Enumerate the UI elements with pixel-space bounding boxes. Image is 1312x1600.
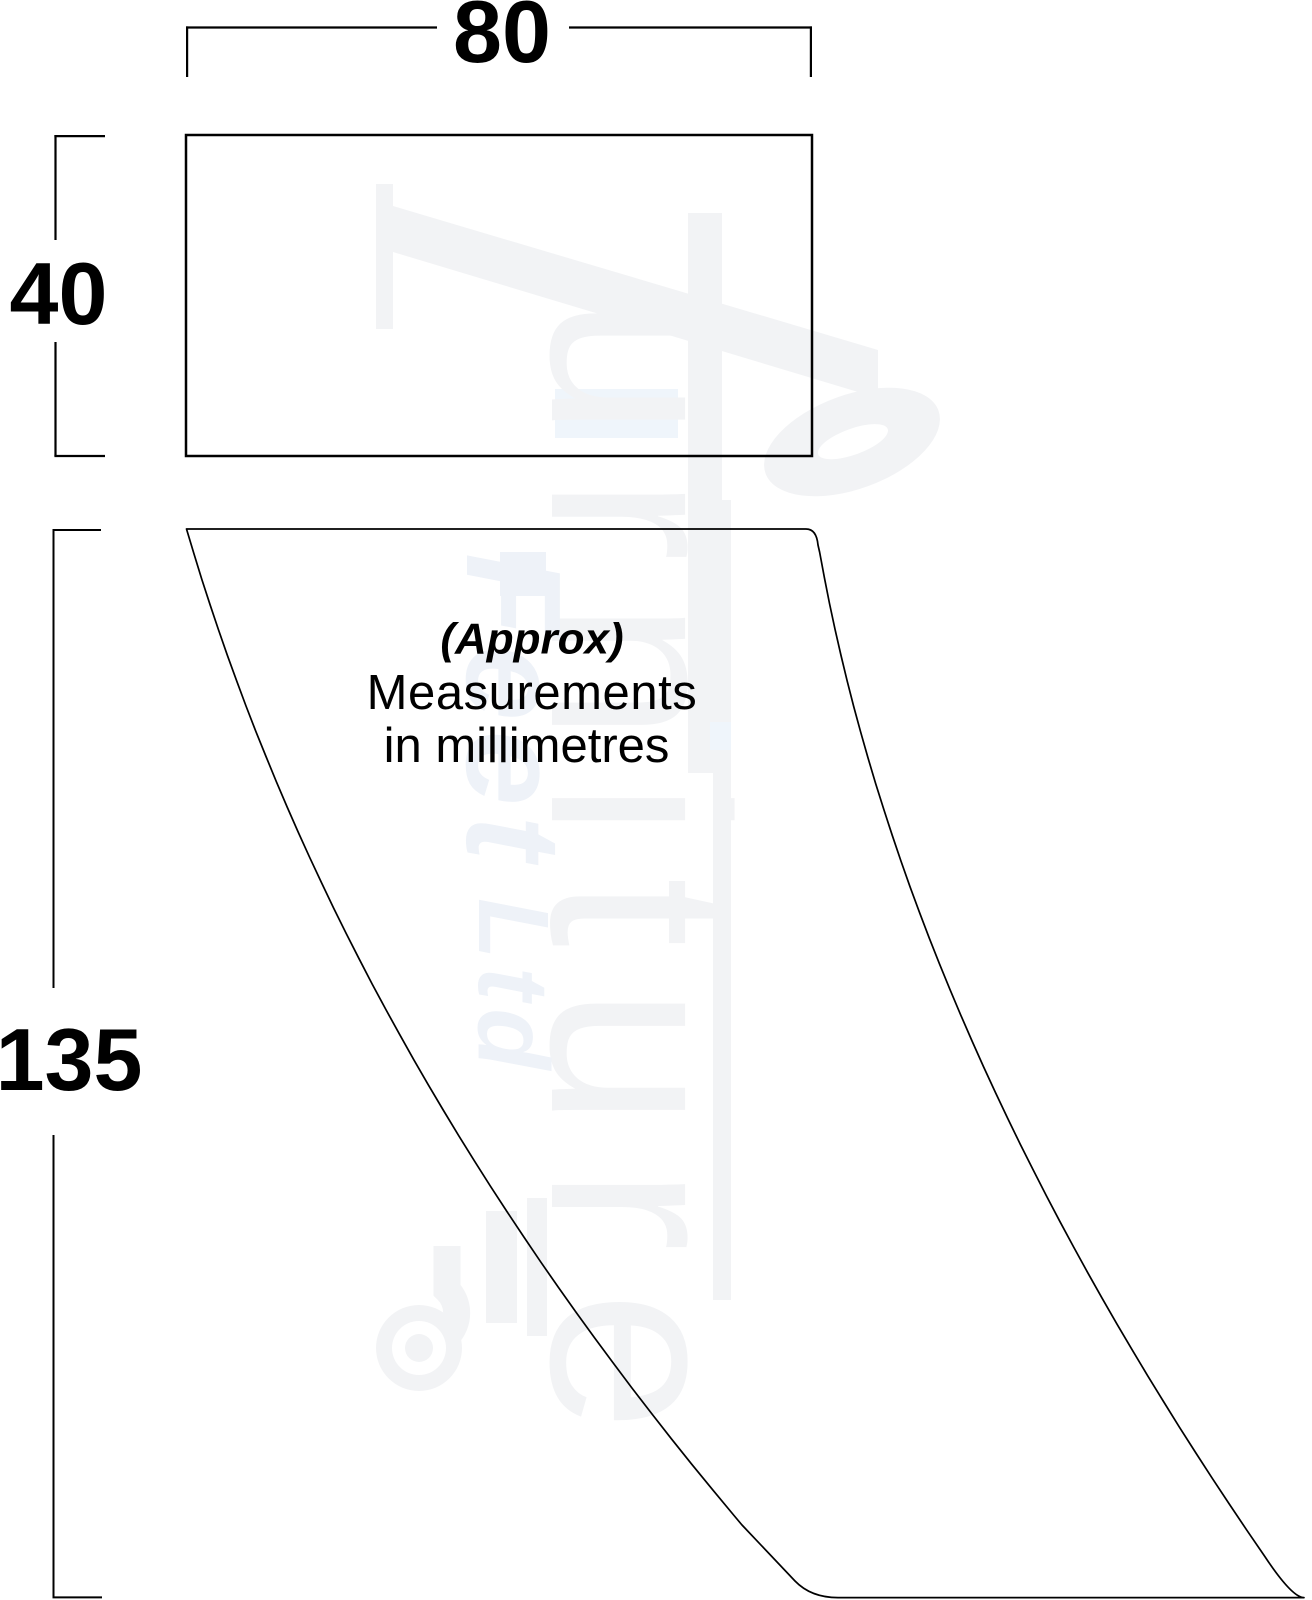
svg-text:80: 80 bbox=[453, 0, 551, 81]
svg-text:135: 135 bbox=[0, 1010, 142, 1109]
svg-text:(Approx): (Approx) bbox=[440, 615, 623, 664]
svg-text:in millimetres: in millimetres bbox=[384, 719, 670, 773]
svg-text:Ltd: Ltd bbox=[457, 898, 569, 1077]
svg-text:Measurements: Measurements bbox=[367, 666, 698, 720]
svg-text:40: 40 bbox=[10, 244, 108, 343]
